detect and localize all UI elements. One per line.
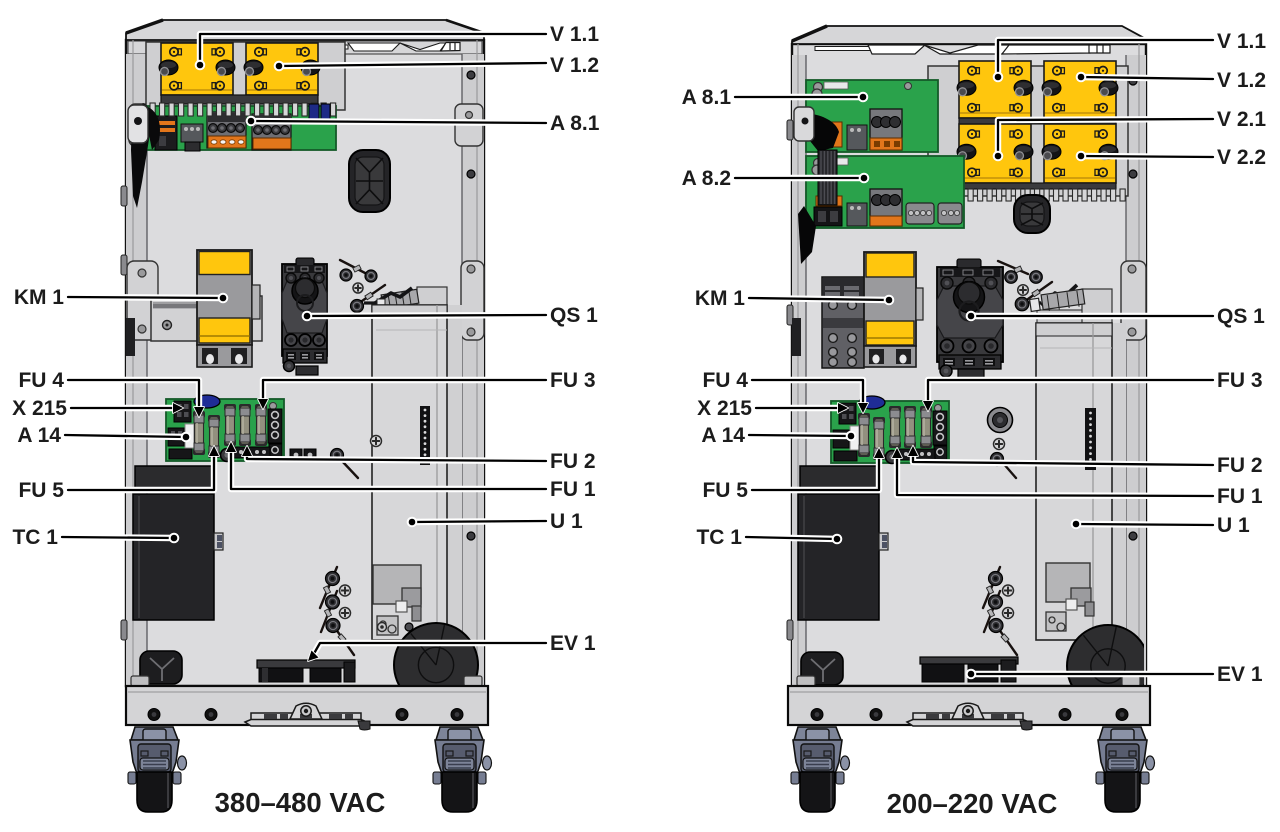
svg-text:KM 1: KM 1 xyxy=(695,287,745,310)
svg-text:EV 1: EV 1 xyxy=(1217,663,1263,686)
svg-text:A 8.1: A 8.1 xyxy=(550,112,600,135)
svg-text:TC 1: TC 1 xyxy=(12,526,58,549)
svg-text:A 14: A 14 xyxy=(17,424,61,447)
svg-text:FU 2: FU 2 xyxy=(1217,454,1263,477)
svg-text:FU 1: FU 1 xyxy=(1217,485,1263,508)
svg-text:A 8.1: A 8.1 xyxy=(682,86,732,109)
svg-text:KM 1: KM 1 xyxy=(14,286,64,309)
svg-text:TC 1: TC 1 xyxy=(696,526,742,549)
svg-text:FU 3: FU 3 xyxy=(550,369,596,392)
svg-text:380–480 VAC: 380–480 VAC xyxy=(215,787,386,818)
svg-text:FU 4: FU 4 xyxy=(18,369,64,392)
svg-text:V 2.2: V 2.2 xyxy=(1217,146,1266,169)
svg-text:X 215: X 215 xyxy=(697,397,752,420)
svg-text:FU 4: FU 4 xyxy=(702,369,748,392)
svg-text:FU 5: FU 5 xyxy=(702,479,748,502)
svg-text:U 1: U 1 xyxy=(550,510,583,533)
svg-text:FU 1: FU 1 xyxy=(550,478,596,501)
svg-text:QS 1: QS 1 xyxy=(550,304,598,327)
svg-text:U 1: U 1 xyxy=(1217,514,1250,537)
svg-text:V 1.1: V 1.1 xyxy=(550,23,599,46)
svg-text:FU 5: FU 5 xyxy=(18,479,64,502)
svg-text:FU 3: FU 3 xyxy=(1217,369,1263,392)
svg-text:V 1.2: V 1.2 xyxy=(550,54,599,77)
svg-text:V 1.2: V 1.2 xyxy=(1217,69,1266,92)
svg-text:A 8.2: A 8.2 xyxy=(682,167,731,190)
svg-text:X 215: X 215 xyxy=(12,397,67,420)
svg-text:A 14: A 14 xyxy=(701,424,745,447)
svg-text:200–220 VAC: 200–220 VAC xyxy=(887,788,1058,819)
svg-text:EV 1: EV 1 xyxy=(550,632,596,655)
svg-text:FU 2: FU 2 xyxy=(550,450,596,473)
svg-text:V 2.1: V 2.1 xyxy=(1217,108,1266,131)
svg-text:QS 1: QS 1 xyxy=(1217,305,1265,328)
svg-text:V 1.1: V 1.1 xyxy=(1217,30,1266,53)
